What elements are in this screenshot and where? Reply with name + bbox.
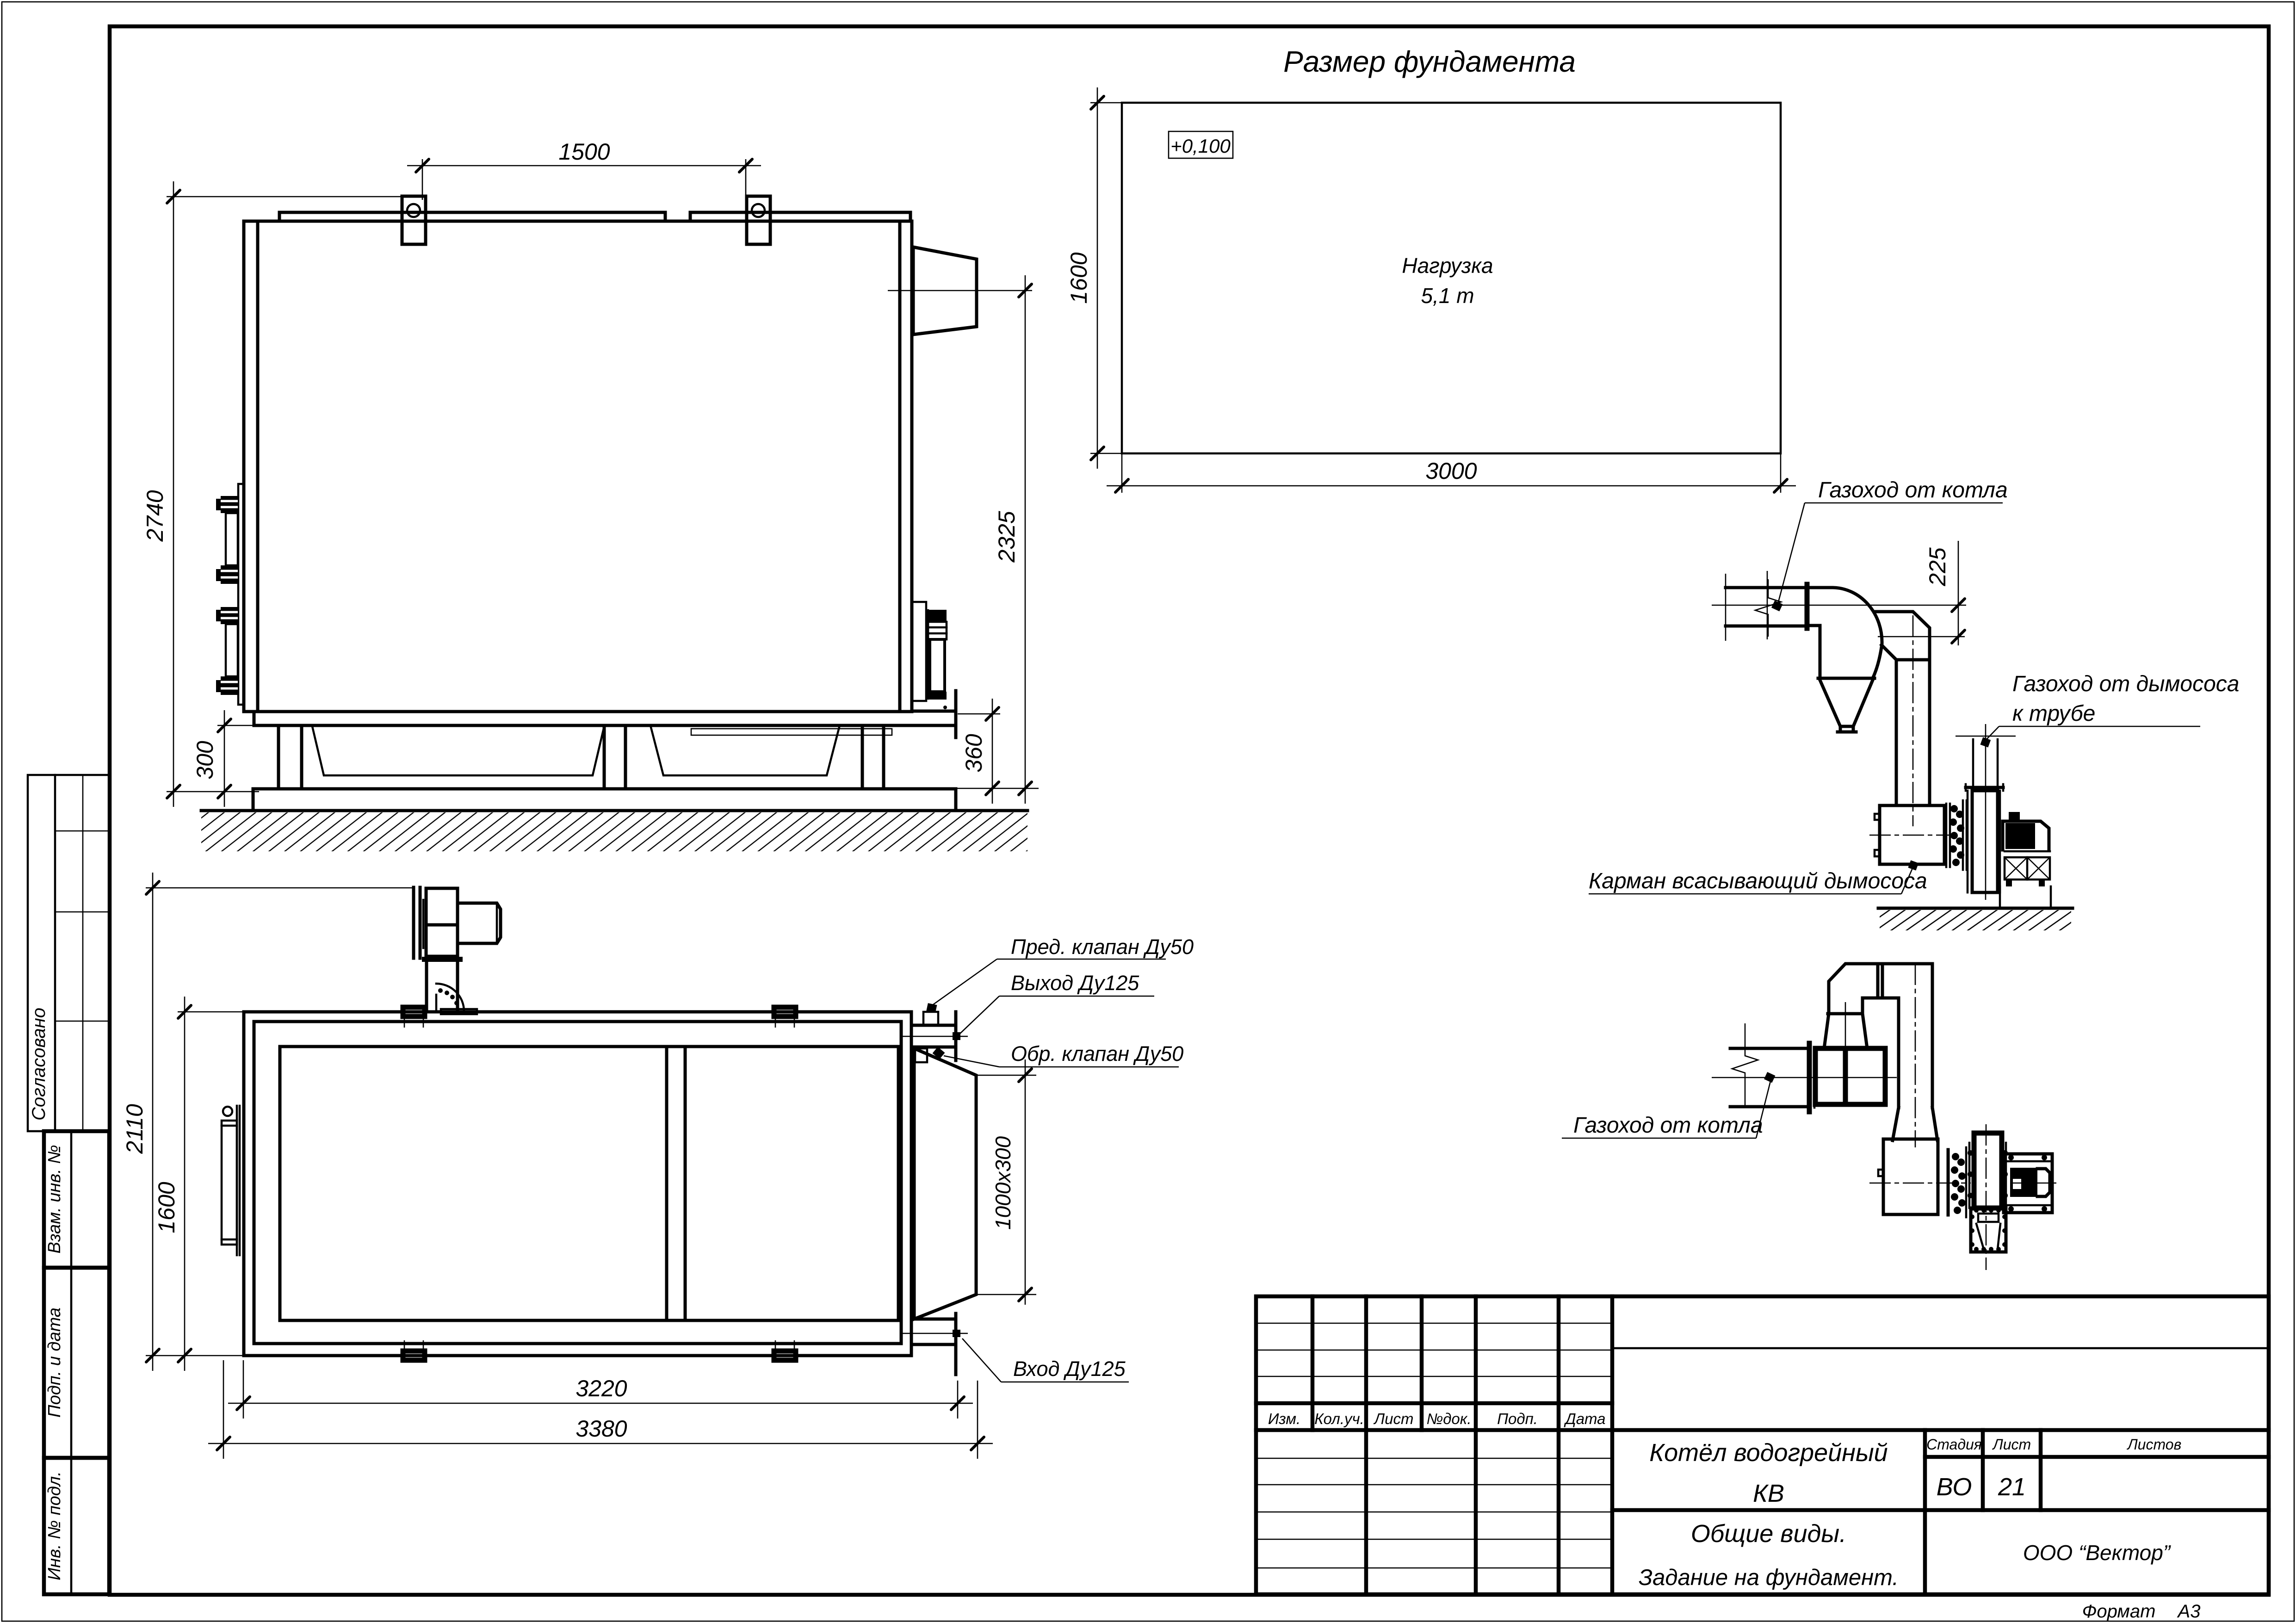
- svg-text:1600: 1600: [154, 1182, 179, 1233]
- svg-text:Задание на фундамент.: Задание на фундамент.: [1639, 1565, 1899, 1590]
- svg-text:Лист: Лист: [1992, 1436, 2031, 1453]
- svg-text:Нагрузка: Нагрузка: [1402, 254, 1493, 278]
- svg-text:ВО: ВО: [1937, 1473, 1972, 1501]
- svg-text:Согласовано: Согласовано: [29, 1008, 49, 1121]
- svg-text:3380: 3380: [576, 1416, 627, 1442]
- svg-text:Общие виды.: Общие виды.: [1691, 1520, 1846, 1548]
- svg-text:Обр. клапан Ду50: Обр. клапан Ду50: [1011, 1042, 1183, 1065]
- svg-text:2325: 2325: [994, 511, 1020, 563]
- svg-text:1000х300: 1000х300: [991, 1136, 1015, 1230]
- svg-text:Газоход от дымососа: Газоход от дымососа: [2012, 672, 2239, 696]
- svg-text:Листов: Листов: [2127, 1436, 2182, 1453]
- svg-text:Взам. инв. №: Взам. инв. №: [45, 1145, 64, 1253]
- svg-text:3000: 3000: [1425, 458, 1477, 484]
- svg-text:Формат: Формат: [2082, 1601, 2156, 1622]
- svg-text:Кол.уч.: Кол.уч.: [1314, 1410, 1364, 1427]
- svg-text:1600: 1600: [1066, 252, 1092, 304]
- svg-text:Стадия: Стадия: [1926, 1436, 1982, 1453]
- svg-text:Лист: Лист: [1374, 1410, 1414, 1427]
- svg-text:Инв. № подл.: Инв. № подл.: [45, 1471, 64, 1580]
- svg-text:2740: 2740: [142, 490, 168, 542]
- svg-text:Газоход от котла: Газоход от котла: [1818, 478, 2008, 502]
- svg-text:Изм.: Изм.: [1268, 1410, 1300, 1427]
- svg-text:Дата: Дата: [1563, 1410, 1605, 1427]
- svg-text:Пред. клапан Ду50: Пред. клапан Ду50: [1011, 935, 1194, 959]
- svg-text:Вход Ду125: Вход Ду125: [1013, 1357, 1126, 1381]
- svg-text:ООО “Вектор”: ООО “Вектор”: [2023, 1541, 2172, 1565]
- svg-text:+0,100: +0,100: [1170, 135, 1231, 157]
- svg-text:1500: 1500: [558, 139, 610, 165]
- svg-text:№док.: №док.: [1426, 1410, 1471, 1427]
- svg-text:Выход Ду125: Выход Ду125: [1011, 971, 1139, 995]
- svg-text:Подп. и дата: Подп. и дата: [45, 1307, 64, 1418]
- svg-text:Подп.: Подп.: [1497, 1410, 1538, 1427]
- svg-text:к трубе: к трубе: [2012, 701, 2095, 726]
- svg-text:360: 360: [961, 734, 987, 773]
- svg-text:Карман всасывающий дымососа: Карман всасывающий дымососа: [1589, 869, 1927, 893]
- svg-text:А3: А3: [2177, 1601, 2201, 1622]
- svg-text:Котёл водогрейный: Котёл водогрейный: [1649, 1439, 1888, 1467]
- svg-text:225: 225: [1925, 547, 1950, 587]
- svg-text:Размер фундамента: Размер фундамента: [1283, 45, 1576, 78]
- svg-text:3220: 3220: [576, 1375, 627, 1401]
- svg-text:2110: 2110: [122, 1104, 148, 1154]
- svg-text:21: 21: [1998, 1473, 2026, 1501]
- svg-text:5,1 т: 5,1 т: [1421, 284, 1474, 308]
- svg-text:Газоход от котла: Газоход от котла: [1573, 1113, 1763, 1138]
- svg-text:КВ: КВ: [1753, 1480, 1784, 1507]
- svg-text:300: 300: [192, 741, 218, 780]
